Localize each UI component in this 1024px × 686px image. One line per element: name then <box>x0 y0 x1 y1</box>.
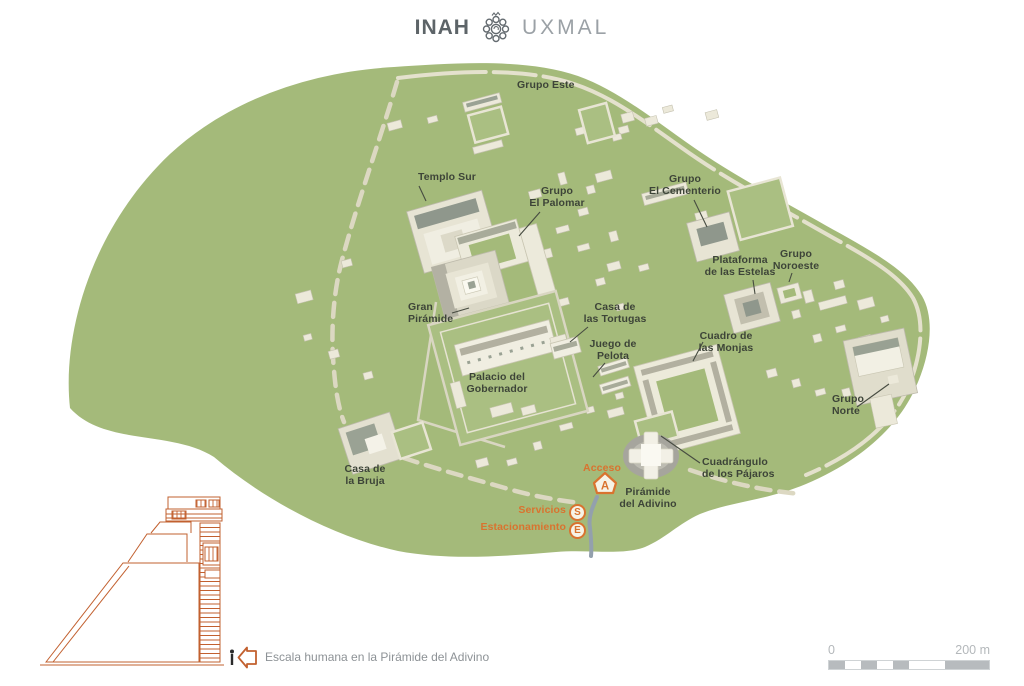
label-juego-de-pelota: Juego de Pelota <box>590 338 637 363</box>
label-cuadrangulo-de-los-pajaros: Cuadrángulo de los Pájaros <box>702 456 775 481</box>
access-badge-letter: A <box>601 481 609 493</box>
human-scale-caption: Escala humana en la Pirámide del Adivino <box>265 650 489 664</box>
label-grupo-el-palomar: Grupo El Palomar <box>529 185 584 210</box>
site-map-canvas <box>0 0 1024 686</box>
scale-bar-segments <box>828 660 990 670</box>
left-arrow-icon <box>239 648 257 668</box>
label-casa-de-las-tortugas: Casa de las Tortugas <box>584 301 647 326</box>
label-grupo-este: Grupo Este <box>517 79 575 91</box>
adivino-profile-drawing <box>40 497 224 665</box>
label-estacionamiento: Estacionamiento <box>480 521 566 533</box>
label-gran-piramide: Gran Pirámide <box>408 301 453 326</box>
label-grupo-el-cementerio: Grupo El Cementerio <box>649 173 721 198</box>
scale-start-label: 0 <box>828 643 835 657</box>
label-piramide-del-adivino: Pirámide del Adivino <box>619 486 676 511</box>
scale-bar: 0 200 m <box>828 643 990 670</box>
label-casa-de-la-bruja: Casa de la Bruja <box>345 463 386 488</box>
scale-end-label: 200 m <box>955 643 990 657</box>
uxmal-site-map-page: INAH UXMAL <box>0 0 1024 686</box>
label-palacio-del-gobernador: Palacio del Gobernador <box>466 371 527 396</box>
label-plataforma-de-las-estelas: Plataforma de las Estelas <box>705 254 776 279</box>
label-grupo-norte: Grupo Norte <box>832 393 864 418</box>
access-badge: A <box>592 471 618 497</box>
label-templo-sur: Templo Sur <box>418 171 476 183</box>
label-grupo-noroeste: Grupo Noroeste <box>773 248 819 273</box>
parking-badge: E <box>569 522 586 539</box>
human-scale-icon <box>227 645 261 671</box>
label-servicios: Servicios <box>518 504 566 516</box>
services-badge: S <box>569 504 586 521</box>
label-cuadro-de-las-monjas: Cuadro de las Monjas <box>699 330 754 355</box>
